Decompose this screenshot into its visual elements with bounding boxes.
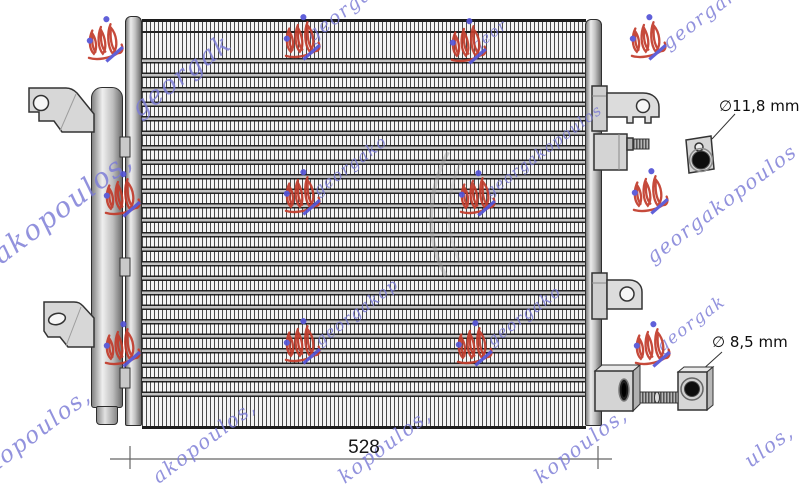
mounting-bracket-bottom-left [44,302,94,347]
fitting-detail-8-5 [655,352,723,410]
inlet-fitting [594,134,649,170]
outlet-fitting [595,365,663,411]
mounting-bracket-bottom-right [592,273,642,319]
parts-overlay [0,0,800,469]
outlet-diameter-label: ∅ 8,5 mm [712,333,788,351]
inlet-diameter-label: ∅11,8 mm [719,97,799,115]
drier-clamps [120,137,130,388]
dimension-width-label: 528 [330,437,398,459]
mounting-bracket-top-left [29,88,94,132]
watermark-swoosh [431,152,462,276]
mounting-bracket-top-right [592,86,659,131]
fitting-detail-11-8 [686,114,735,173]
